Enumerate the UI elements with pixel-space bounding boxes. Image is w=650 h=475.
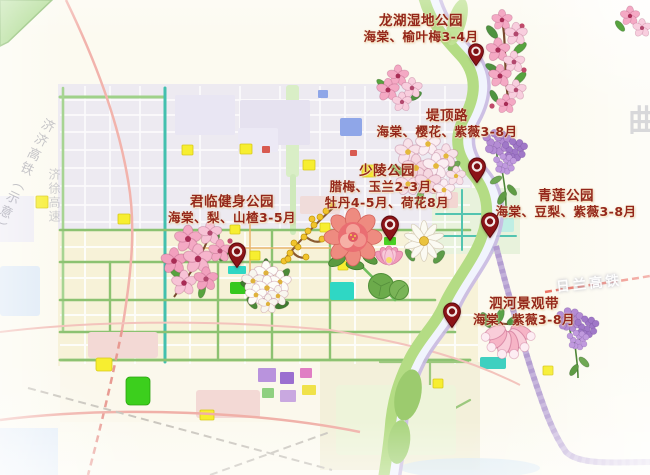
map-pin-junlin[interactable]: [227, 241, 247, 268]
magnolia-illustration-icon: [403, 221, 447, 266]
park-name-sihe: 泗河景观带: [473, 296, 575, 312]
blossom-cluster-top-icon: [375, 65, 423, 112]
flowers-didinglu: 海棠、樱花、紫薇3-8月: [376, 124, 517, 140]
flowers-qinglian: 海棠、豆梨、紫薇3-8月: [495, 204, 636, 220]
park-name-qinglian: 青莲公园: [495, 188, 636, 204]
crabapple-cluster-junlin-icon: [160, 221, 237, 299]
flowers-shaoling-1: 腊梅、玉兰2-3月、: [325, 179, 449, 195]
blossom-sprig-corner-icon: [614, 6, 650, 38]
park-name-junlin: 君临健身公园: [168, 194, 296, 210]
label-didinglu: 堤顶路 海棠、樱花、紫薇3-8月: [376, 108, 517, 140]
label-shaoling: 少陵公园 腊梅、玉兰2-3月、 牡丹4-5月、荷花8月: [325, 163, 449, 211]
map-pin-didinglu[interactable]: [467, 156, 487, 183]
flower-viewing-map: 济济高铁（示意） 济徐高速 日兰高铁 曲: [0, 0, 650, 475]
park-name-shaoling: 少陵公园: [325, 163, 449, 179]
peony-illustration-icon: [324, 208, 382, 271]
flowers-longhu: 海棠、榆叶梅3-4月: [363, 29, 478, 45]
map-pin-qinglian[interactable]: [480, 211, 500, 238]
map-pin-longhu[interactable]: [467, 42, 485, 66]
white-flower-cluster-junlin-icon: [239, 259, 292, 315]
label-longhu: 龙湖湿地公园 海棠、榆叶梅3-4月: [363, 13, 478, 45]
flower-illustrations: [0, 0, 650, 475]
label-sihe: 泗河景观带 海棠、紫薇3-8月: [473, 296, 575, 328]
label-qinglian: 青莲公园 海棠、豆梨、紫薇3-8月: [495, 188, 636, 220]
map-pin-shaoling[interactable]: [380, 214, 400, 241]
park-name-didinglu: 堤顶路: [376, 108, 517, 124]
label-junlin: 君临健身公园 海棠、梨、山楂3-5月: [168, 194, 296, 226]
flowers-sihe: 海棠、紫薇3-8月: [473, 312, 575, 328]
flowers-junlin: 海棠、梨、山楂3-5月: [168, 210, 296, 226]
park-name-longhu: 龙湖湿地公园: [363, 13, 478, 29]
blossom-branch-longhu-icon: [484, 9, 528, 114]
map-pin-sihe[interactable]: [442, 301, 462, 328]
flowers-shaoling-2: 牡丹4-5月、荷花8月: [325, 195, 449, 211]
